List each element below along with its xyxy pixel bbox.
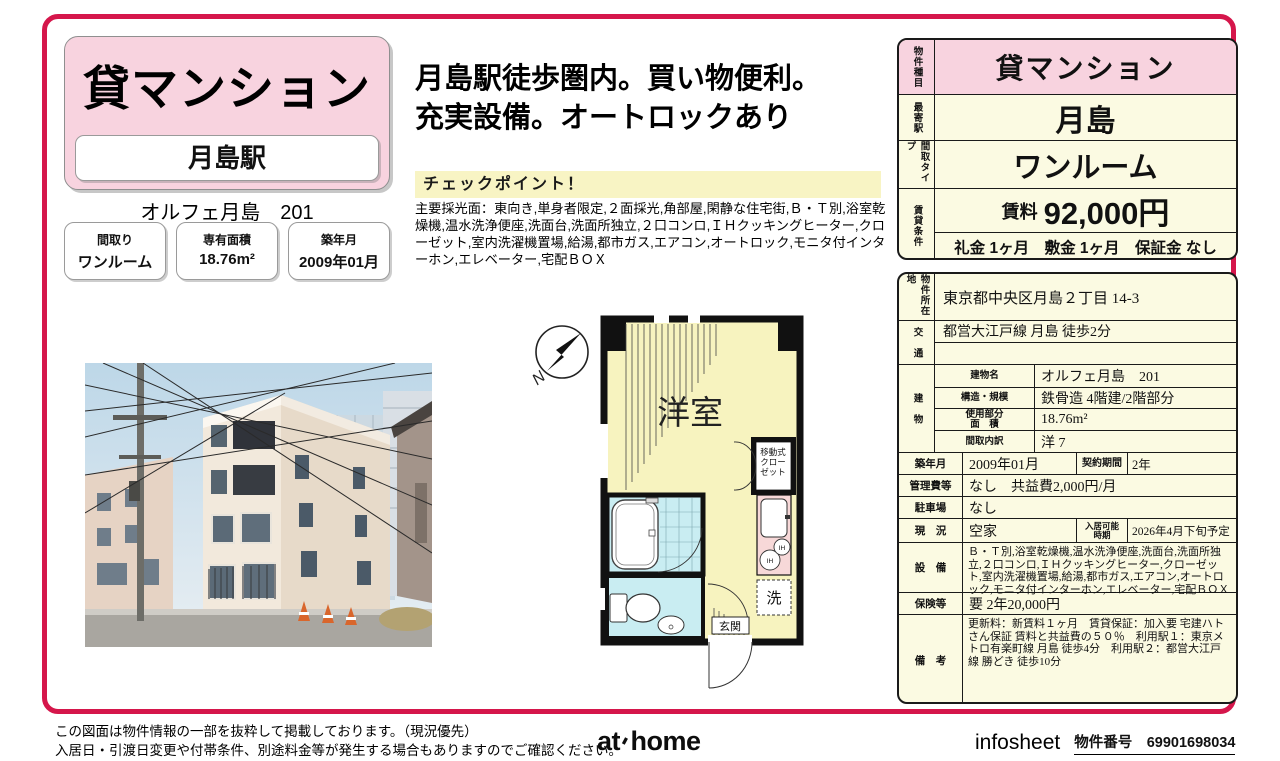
row-value: 要 2年20,000円 (963, 593, 1236, 614)
summary-table: 物件種目 貸マンション 最寄駅 月島 間取タイプ ワンルーム 賃貸条件 賃料 9… (897, 38, 1238, 260)
badge-value: 18.76m² (177, 251, 277, 268)
property-infosheet: 貸マンション 月島駅 オルフェ月島 201 間取り ワンルーム 専有面積 18.… (0, 0, 1280, 761)
layout-detail-row: 間取内訳 洋 7 (935, 430, 1236, 452)
row-parking: 駐車場 なし (899, 496, 1236, 518)
at-home-logo: at-home (597, 726, 701, 757)
sub-label: 契約期間 (1076, 453, 1128, 474)
badge-layout: 間取り ワンルーム (64, 222, 166, 280)
transport-line2 (935, 343, 1236, 364)
summary-row-layout: 間取タイプ ワンルーム (899, 140, 1236, 188)
row-value: なし 共益費2,000円/月 (963, 475, 1236, 496)
row-label: 建 物 (899, 365, 935, 452)
row-label: 物件所在地 (899, 274, 935, 320)
row-building: 建 物 建物名 オルフェ月島 201 構造・規模 鉄骨造 4階建/2階部分 使用… (899, 364, 1236, 452)
badge-value: 2009年01月 (289, 251, 389, 272)
disclaimer-line2: 入居日・引渡日変更や付帯条件、別途料金等が発生する場合もありますのでご確認くださ… (55, 741, 622, 760)
closet-label-line1: 移動式 (760, 447, 786, 457)
detail-table: 物件所在地 東京都中央区月島２丁目 14-3 交 通 都営大江戸線 月島 徒歩2… (897, 272, 1238, 704)
row-status: 現 況 空家 入居可能 時期 2026年4月下旬予定 (899, 518, 1236, 542)
disclaimer: この図面は物件情報の一部を抜粋して掲載しております。（現況優先） 入居日・引渡日… (55, 722, 622, 760)
entrance-label: 玄関 (719, 619, 741, 633)
row-insurance: 保険等 要 2年20,000円 (899, 592, 1236, 614)
sub-label: 入居可能 時期 (1076, 519, 1128, 542)
catch-copy: 月島駅徒歩圏内。買い物便利。 充実設備。オートロックあり (415, 60, 890, 138)
row-label: 駐車場 (899, 497, 963, 518)
row-value: 東京都中央区月島２丁目 14-3 (935, 274, 1236, 320)
row-label: 管理費等 (899, 475, 963, 496)
closet-label-line2: クロー (760, 457, 786, 467)
sub-label: 使用部分 面 積 (935, 409, 1035, 430)
ih-burner-label: IH (779, 545, 786, 552)
row-label: 物件種目 (899, 40, 935, 94)
row-label: 賃貸条件 (899, 189, 935, 260)
checkpoint-label: チェックポイント！ (415, 176, 585, 193)
rent-label: 賃料 (1002, 198, 1038, 224)
summary-row-terms: 賃貸条件 賃料 92,000円 礼金 1ヶ月 敷金 1ヶ月 保証金 なし (899, 188, 1236, 260)
sub-value: 18.76m² (1035, 409, 1236, 430)
row-equipment: 設 備 Ｂ・Ｔ別,浴室乾燥機,温水洗浄便座,洗面台,洗面所独立,２口コンロ,ＩＨ… (899, 542, 1236, 592)
property-number: 物件番号 69901698034 (1074, 731, 1235, 755)
catch-copy-line2: 充実設備。オートロックあり (415, 99, 890, 138)
laundry-space: 洗 (757, 580, 791, 615)
kitchen: IH IH (757, 495, 791, 575)
structure-row: 構造・規模 鉄骨造 4階建/2階部分 (935, 387, 1236, 409)
row-transport: 交 通 都営大江戸線 月島 徒歩2分 (899, 320, 1236, 364)
compass-icon: N (530, 326, 588, 389)
row-value: 更新料：新賃料１ヶ月 賃貸保証：加入要 宅建ハトさん保証 賃料と共益費の５０％ … (963, 615, 1236, 704)
summary-row-station: 最寄駅 月島 (899, 94, 1236, 140)
row-label: 間取タイプ (899, 141, 935, 188)
row-label: 備 考 (899, 615, 963, 704)
property-type-box: 貸マンション 月島駅 (64, 36, 390, 190)
row-notes: 備 考 更新料：新賃料１ヶ月 賃貸保証：加入要 宅建ハトさん保証 賃料と共益費の… (899, 614, 1236, 704)
rent-line: 賃料 92,000円 (935, 189, 1236, 233)
summary-row-type: 物件種目 貸マンション (899, 40, 1236, 94)
row-value: なし (963, 497, 1236, 518)
ih-burner-label: IH (767, 558, 774, 565)
feature-list: 主要採光面：東向き,単身者限定,２面採光,角部屋,閑静な住宅街,Ｂ・Ｔ別,浴室乾… (415, 200, 887, 268)
badge-value: ワンルーム (65, 251, 165, 272)
property-type-heading: 貸マンション (65, 50, 389, 119)
badge-label: 間取り (65, 231, 165, 248)
row-label: 最寄駅 (899, 95, 935, 140)
sub-value: 2年 (1128, 453, 1236, 474)
disclaimer-line1: この図面は物件情報の一部を抜粋して掲載しております。（現況優先） (55, 722, 622, 741)
floor-plan: N 洋室 移動式 クロー ゼット (530, 312, 875, 704)
row-label: 保険等 (899, 593, 963, 614)
row-value: 空家 (963, 519, 1076, 542)
row-value: Ｂ・Ｔ別,浴室乾燥機,温水洗浄便座,洗面台,洗面所独立,２口コンロ,ＩＨクッキン… (963, 543, 1236, 592)
building-name-row: 建物名 オルフェ月島 201 (935, 365, 1236, 387)
infosheet-group: infosheet 物件番号 69901698034 (975, 731, 1235, 755)
station-box: 月島駅 (75, 135, 379, 181)
transport-line1: 都営大江戸線 月島 徒歩2分 (935, 321, 1236, 343)
area-row: 使用部分 面 積 18.76m² (935, 408, 1236, 430)
row-label: 交 通 (899, 321, 935, 364)
badge-area: 専有面積 18.76m² (176, 222, 278, 280)
badge-built: 築年月 2009年01月 (288, 222, 390, 280)
sub-label: 構造・規模 (935, 388, 1035, 409)
row-label: 現 況 (899, 519, 963, 542)
row-value: 月島 (935, 95, 1236, 140)
badge-label: 専有面積 (177, 231, 277, 248)
sub-label: 建物名 (935, 365, 1035, 387)
sub-value: 2026年4月下旬予定 (1128, 519, 1236, 542)
rent-value: 92,000円 (1044, 188, 1170, 233)
sub-value: オルフェ月島 201 (1035, 365, 1236, 387)
checkpoint-band: チェックポイント！ (415, 171, 881, 198)
row-label: 設 備 (899, 543, 963, 592)
row-mgmt: 管理費等 なし 共益費2,000円/月 (899, 474, 1236, 496)
row-label: 築年月 (899, 453, 963, 474)
laundry-label: 洗 (766, 590, 781, 607)
sub-label: 間取内訳 (935, 431, 1035, 452)
catch-copy-line1: 月島駅徒歩圏内。買い物便利。 (415, 60, 890, 99)
badge-label: 築年月 (289, 231, 389, 248)
sub-value: 鉄骨造 4階建/2階部分 (1035, 388, 1236, 409)
building-photo (85, 363, 432, 647)
sub-value: 洋 7 (1035, 431, 1236, 452)
row-value: 2009年01月 (963, 453, 1076, 474)
building-title: オルフェ月島 201 (64, 196, 390, 225)
row-value: ワンルーム (935, 141, 1236, 188)
toilet-room (607, 576, 703, 638)
row-built: 築年月 2009年01月 契約期間 2年 (899, 452, 1236, 474)
terms-line: 礼金 1ヶ月 敷金 1ヶ月 保証金 なし (935, 233, 1236, 260)
row-value: 貸マンション (935, 40, 1236, 94)
room-label: 洋室 (657, 394, 723, 431)
row-location: 物件所在地 東京都中央区月島２丁目 14-3 (899, 274, 1236, 320)
closet-label-line3: ゼット (760, 467, 786, 477)
infosheet-label: infosheet (975, 731, 1060, 755)
bathroom (607, 495, 703, 574)
